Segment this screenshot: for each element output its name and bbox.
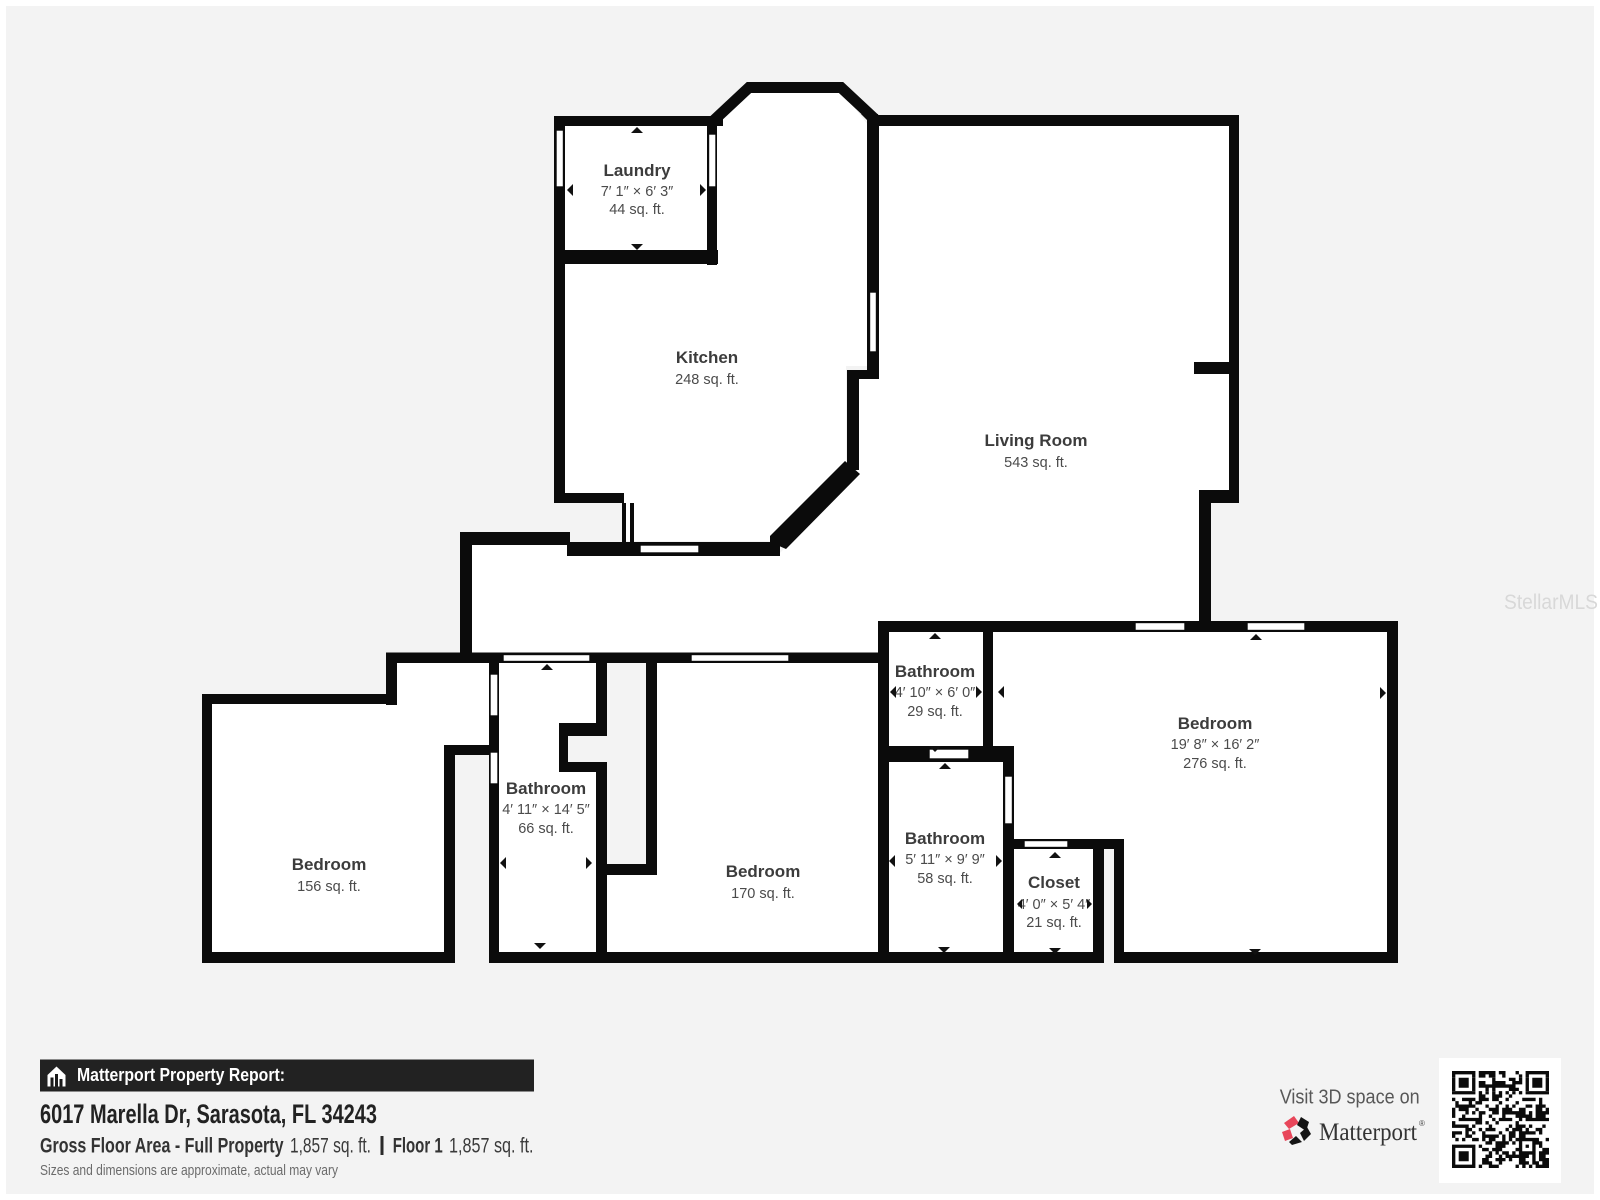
svg-text:Bathroom: Bathroom bbox=[895, 662, 975, 681]
svg-text:19′ 8″ × 16′ 2″: 19′ 8″ × 16′ 2″ bbox=[1171, 737, 1260, 753]
svg-text:29 sq. ft.: 29 sq. ft. bbox=[907, 704, 963, 720]
svg-text:543 sq. ft.: 543 sq. ft. bbox=[1004, 455, 1068, 471]
svg-text:Laundry: Laundry bbox=[603, 161, 671, 180]
svg-text:®: ® bbox=[1419, 1119, 1425, 1128]
svg-text:Floor 1: Floor 1 bbox=[393, 1135, 443, 1158]
svg-text:Visit 3D space on: Visit 3D space on bbox=[1280, 1087, 1420, 1109]
svg-text:Bathroom: Bathroom bbox=[506, 779, 586, 798]
svg-text:156 sq. ft.: 156 sq. ft. bbox=[297, 879, 361, 895]
svg-text:1,857 sq. ft.: 1,857 sq. ft. bbox=[290, 1135, 371, 1158]
svg-text:Matterport Property Report:: Matterport Property Report: bbox=[77, 1065, 285, 1085]
svg-text:7′ 1″ × 6′ 3″: 7′ 1″ × 6′ 3″ bbox=[601, 184, 674, 200]
svg-text:5′ 11″ × 9′ 9″: 5′ 11″ × 9′ 9″ bbox=[905, 852, 985, 868]
svg-text:4′ 11″ × 14′ 5″: 4′ 11″ × 14′ 5″ bbox=[502, 802, 590, 818]
svg-text:276 sq. ft.: 276 sq. ft. bbox=[1183, 756, 1247, 772]
svg-text:Sizes and dimensions are appro: Sizes and dimensions are approximate, ac… bbox=[40, 1162, 338, 1179]
svg-text:58 sq. ft.: 58 sq. ft. bbox=[917, 871, 973, 887]
svg-text:Bedroom: Bedroom bbox=[1178, 714, 1253, 733]
svg-text:Bedroom: Bedroom bbox=[292, 855, 367, 874]
svg-text:21 sq. ft.: 21 sq. ft. bbox=[1026, 915, 1082, 931]
svg-text:1,857 sq. ft.: 1,857 sq. ft. bbox=[449, 1135, 534, 1158]
svg-text:Gross Floor Area - Full Proper: Gross Floor Area - Full Property bbox=[40, 1135, 284, 1158]
svg-text:4′ 0″ × 5′ 4″: 4′ 0″ × 5′ 4″ bbox=[1018, 897, 1091, 913]
svg-text:170 sq. ft.: 170 sq. ft. bbox=[731, 886, 795, 902]
svg-text:Kitchen: Kitchen bbox=[676, 348, 738, 367]
svg-text:Bathroom: Bathroom bbox=[905, 829, 985, 848]
svg-text:6017 Marella Dr, Sarasota, FL: 6017 Marella Dr, Sarasota, FL 34243 bbox=[40, 1099, 377, 1129]
svg-text:Closet: Closet bbox=[1028, 873, 1080, 892]
svg-text:44 sq. ft.: 44 sq. ft. bbox=[609, 202, 665, 218]
svg-text:Living Room: Living Room bbox=[985, 431, 1088, 450]
svg-text:Matterport: Matterport bbox=[1319, 1119, 1417, 1146]
svg-text:Bedroom: Bedroom bbox=[726, 862, 801, 881]
svg-text:248 sq. ft.: 248 sq. ft. bbox=[675, 372, 739, 388]
svg-text:66 sq. ft.: 66 sq. ft. bbox=[518, 821, 574, 837]
svg-text:StellarMLS: StellarMLS bbox=[1504, 591, 1598, 614]
svg-text:4′ 10″ × 6′ 0″: 4′ 10″ × 6′ 0″ bbox=[895, 685, 976, 701]
